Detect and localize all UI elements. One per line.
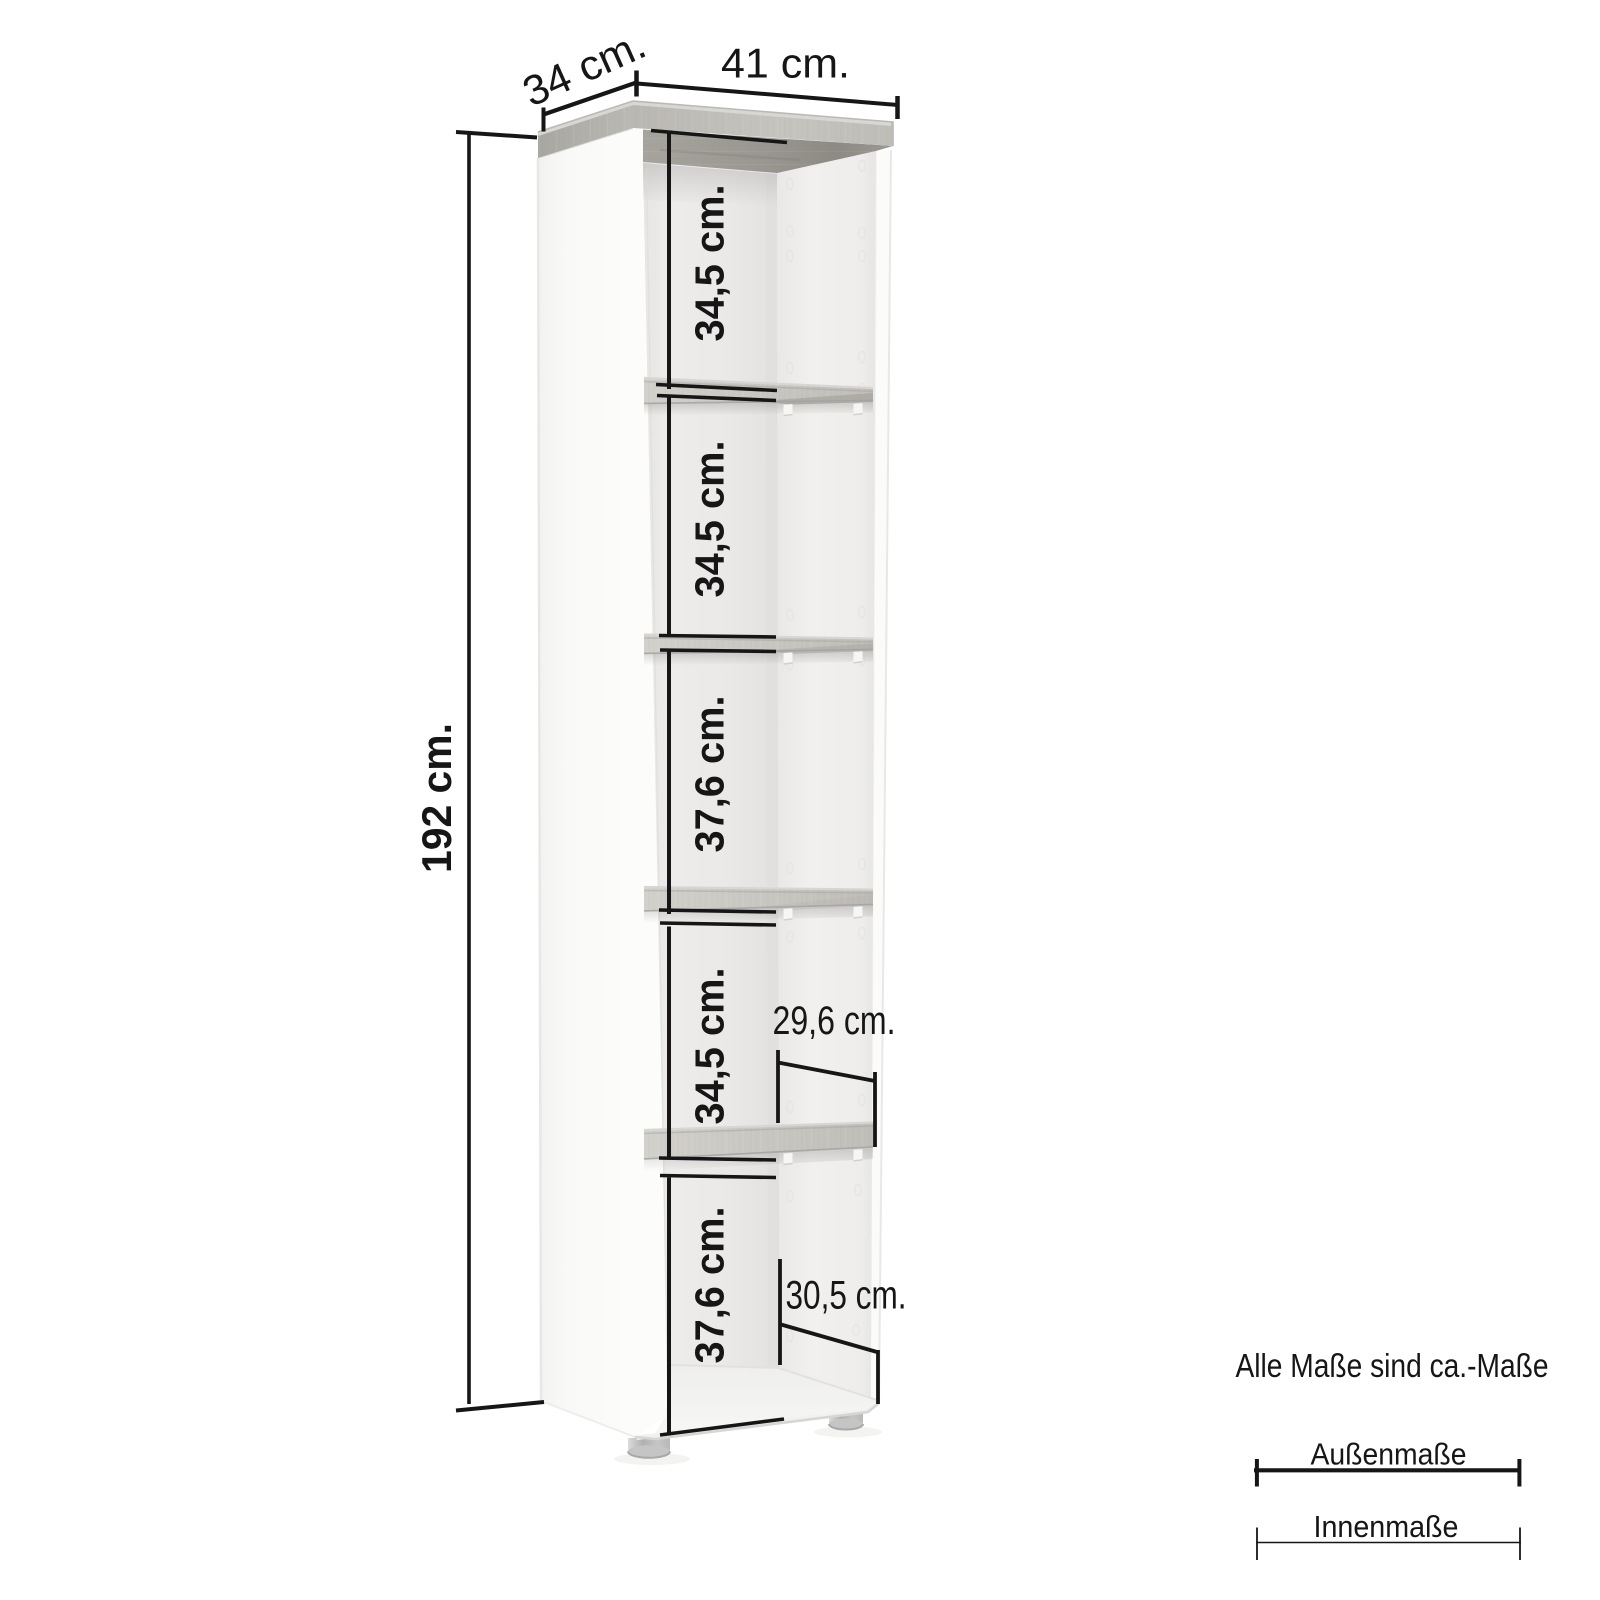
svg-text:37,6 cm.: 37,6 cm.	[687, 1207, 733, 1364]
svg-text:29,6 cm.: 29,6 cm.	[773, 999, 896, 1043]
svg-text:Alle Maße sind ca.-Maße: Alle Maße sind ca.-Maße	[1236, 1347, 1549, 1384]
svg-text:41 cm.: 41 cm.	[721, 40, 850, 87]
svg-text:34,5 cm.: 34,5 cm.	[687, 441, 733, 598]
svg-text:34,5 cm.: 34,5 cm.	[687, 185, 733, 342]
svg-text:Außenmaße: Außenmaße	[1311, 1437, 1467, 1472]
svg-text:Innenmaße: Innenmaße	[1314, 1509, 1459, 1544]
svg-text:37,6 cm.: 37,6 cm.	[687, 696, 733, 853]
svg-text:34,5 cm.: 34,5 cm.	[687, 968, 733, 1125]
svg-text:192 cm.: 192 cm.	[413, 723, 460, 873]
svg-text:30,5 cm.: 30,5 cm.	[786, 1274, 907, 1318]
